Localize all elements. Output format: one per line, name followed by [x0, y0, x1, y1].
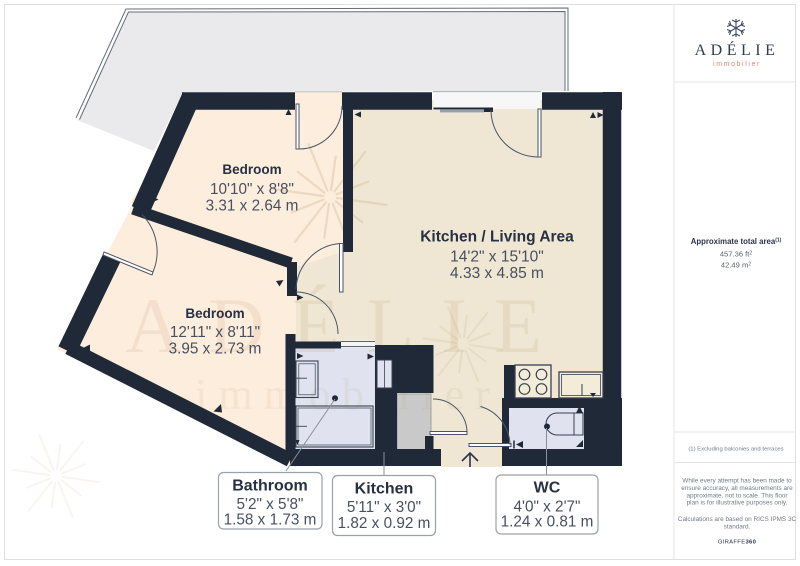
svg-text:4.33 x 4.85 m: 4.33 x 4.85 m [450, 265, 544, 282]
svg-text:ensure accuracy, all measureme: ensure accuracy, all measurements are [681, 485, 793, 492]
svg-text:plan is for illustrative purpo: plan is for illustrative purposes only. [687, 500, 788, 507]
svg-text:standard.: standard. [724, 524, 751, 531]
svg-text:immobilier: immobilier [195, 370, 501, 419]
svg-text:GIRAFFE360: GIRAFFE360 [718, 540, 757, 546]
svg-text:Bedroom: Bedroom [185, 306, 244, 321]
svg-text:Kitchen: Kitchen [355, 481, 414, 498]
svg-text:ADÉLIE: ADÉLIE [695, 40, 780, 59]
svg-text:While every attempt has been m: While every attempt has been made to [682, 478, 792, 485]
svg-text:Bathroom: Bathroom [232, 478, 308, 495]
svg-text:3.95 x 2.73 m: 3.95 x 2.73 m [169, 341, 262, 358]
svg-text:Approximate total area(1): Approximate total area(1) [691, 237, 782, 246]
svg-text:Kitchen / Living Area: Kitchen / Living Area [420, 229, 574, 246]
svg-text:1.24 x 0.81 m: 1.24 x 0.81 m [501, 513, 594, 530]
svg-text:Bedroom: Bedroom [222, 162, 281, 177]
svg-text:457.36 ft2: 457.36 ft2 [720, 250, 753, 259]
svg-text:Calculations are based on RICS: Calculations are based on RICS IPMS 3C [678, 516, 797, 523]
svg-text:1.58 x 1.73 m: 1.58 x 1.73 m [224, 512, 317, 529]
svg-text:5'2" x 5'8": 5'2" x 5'8" [237, 496, 304, 513]
svg-text:14'2" x 15'10": 14'2" x 15'10" [450, 249, 544, 266]
svg-text:3.31 x 2.64 m: 3.31 x 2.64 m [206, 198, 299, 215]
svg-text:1.82 x 0.92 m: 1.82 x 0.92 m [338, 515, 431, 532]
svg-text:10'10" x 8'8": 10'10" x 8'8" [210, 181, 294, 198]
svg-text:immobilier: immobilier [713, 61, 761, 68]
svg-text:WC: WC [534, 480, 561, 497]
svg-text:12'11" x 8'11": 12'11" x 8'11" [170, 324, 260, 341]
svg-text:42.49 m2: 42.49 m2 [721, 261, 751, 270]
svg-text:5'11" x 3'0": 5'11" x 3'0" [347, 499, 421, 516]
svg-text:approximate, not to scale. Thi: approximate, not to scale. This floor [686, 492, 788, 499]
svg-text:(1) Excluding balconies and te: (1) Excluding balconies and terraces [688, 447, 783, 453]
